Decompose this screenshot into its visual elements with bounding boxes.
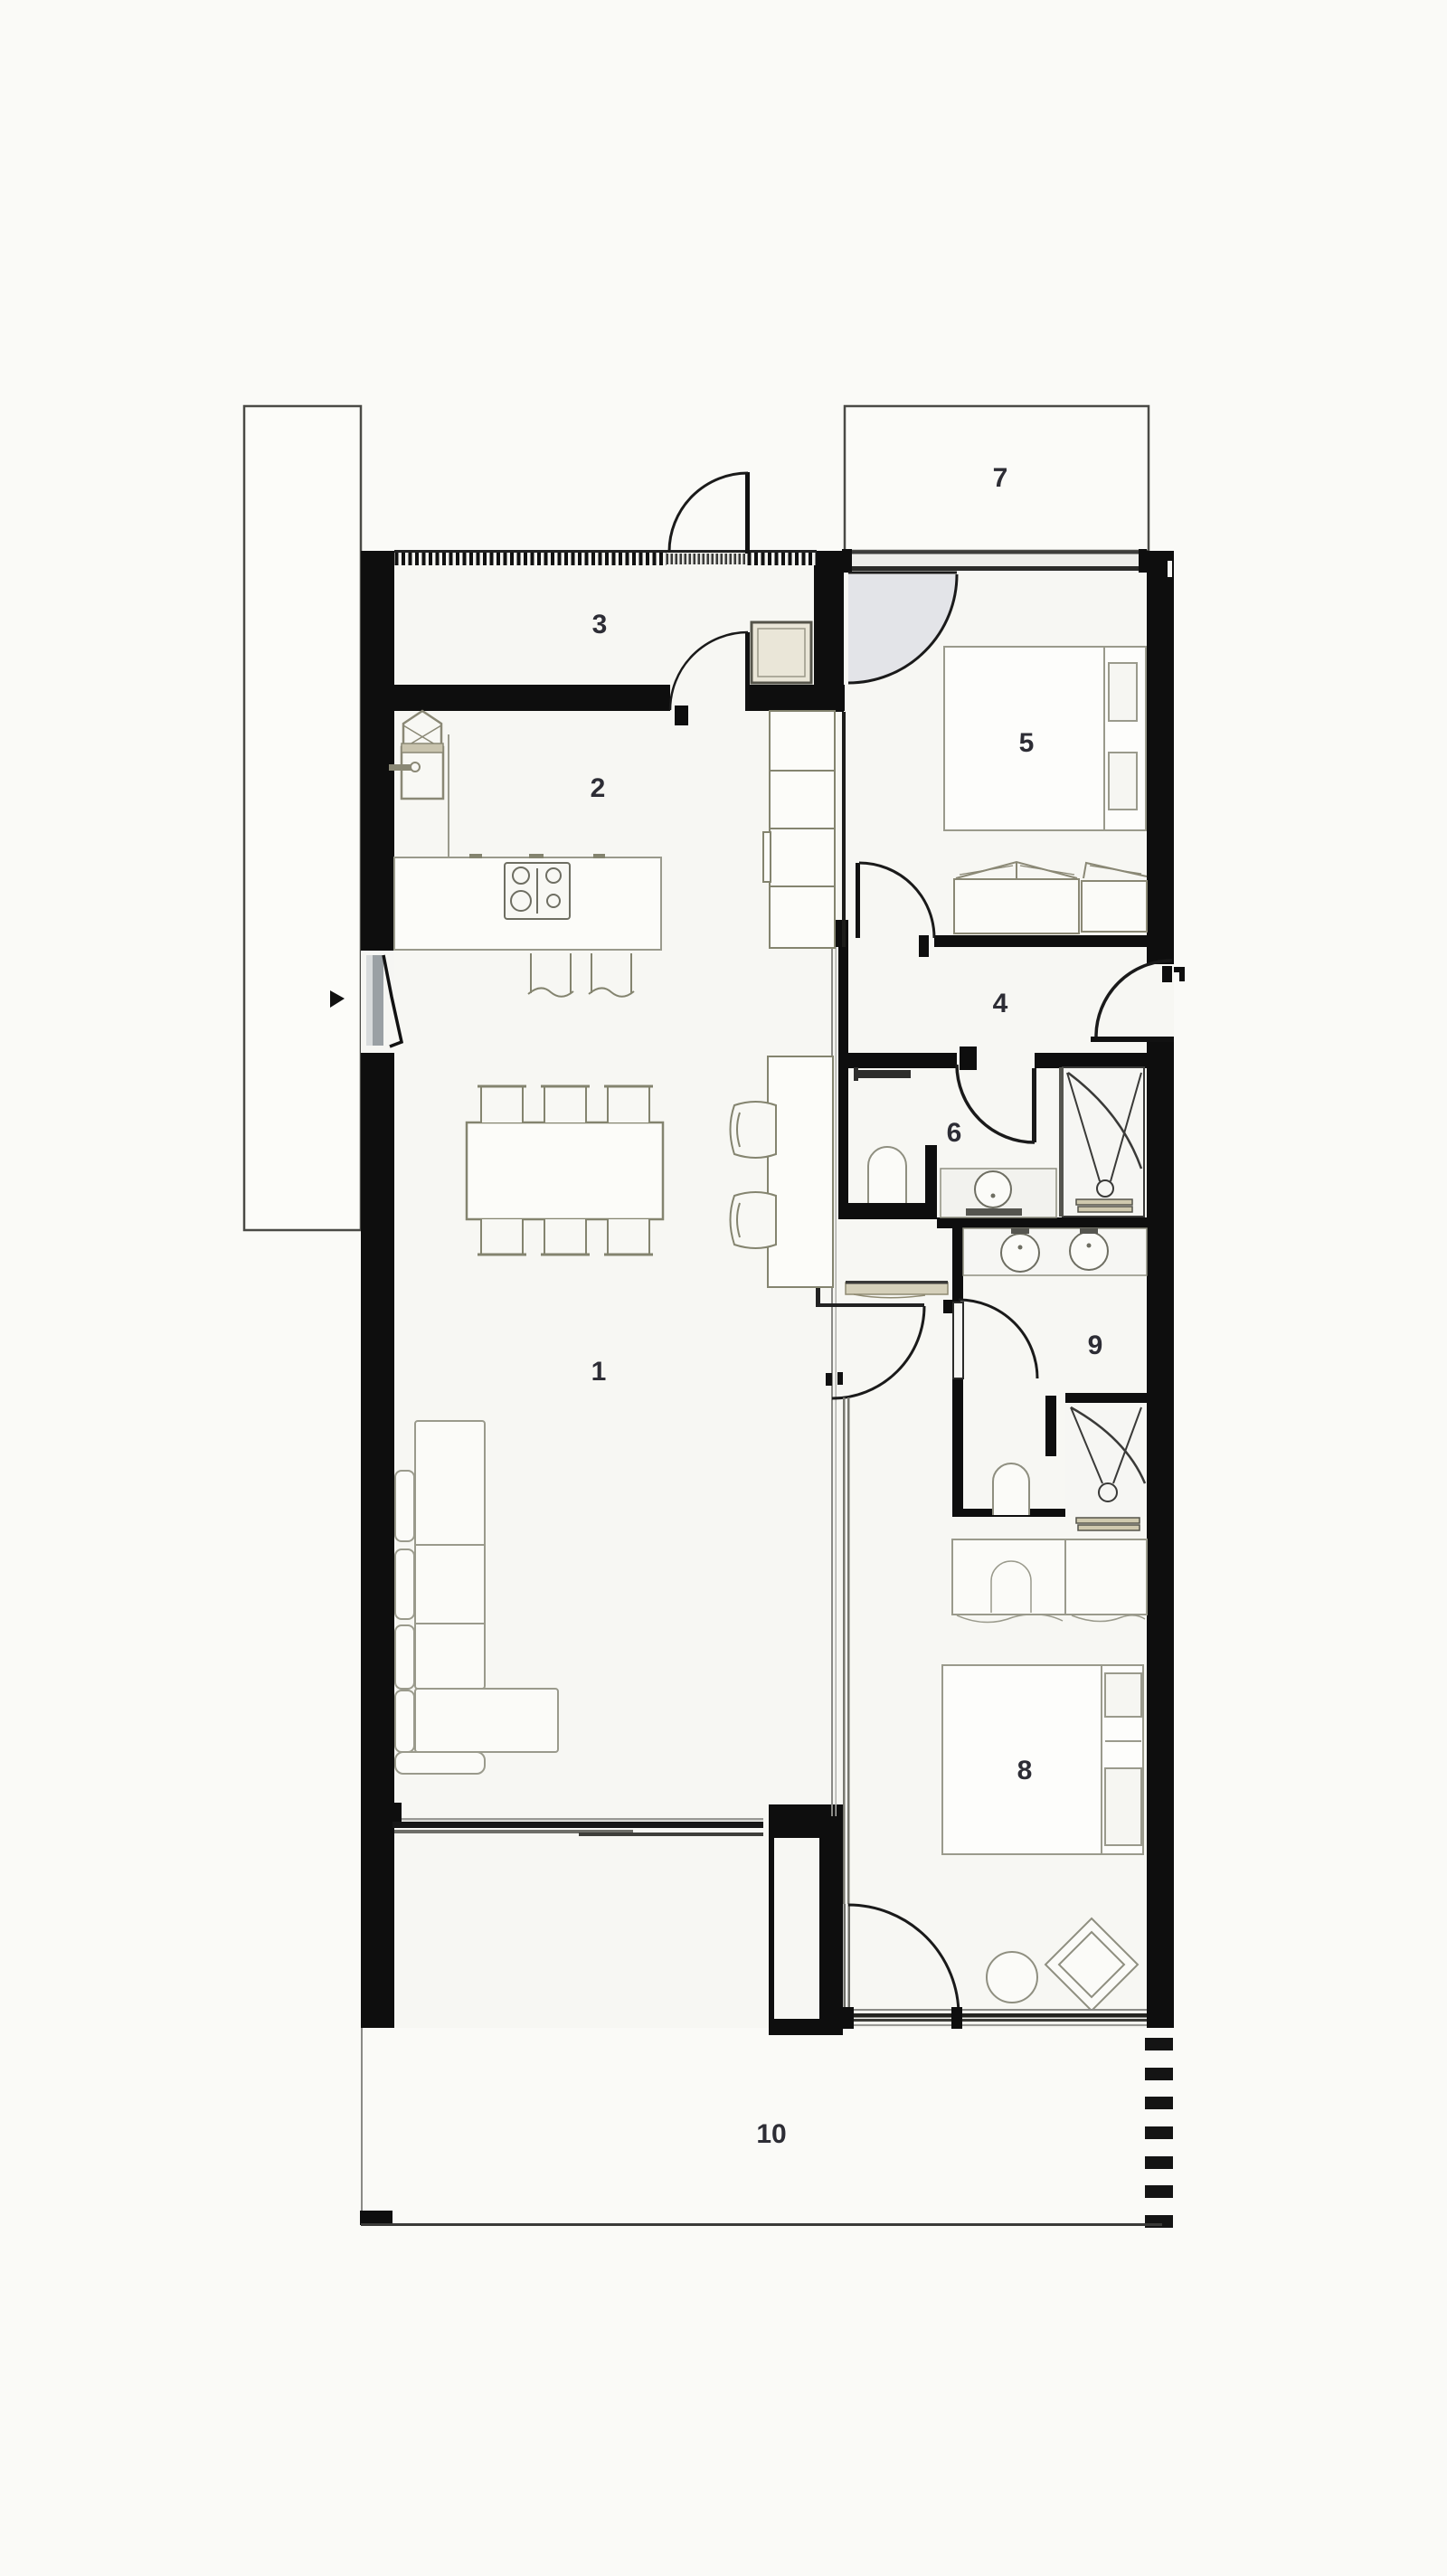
svg-text:4: 4 bbox=[993, 989, 1008, 1018]
svg-text:2: 2 bbox=[591, 773, 606, 803]
svg-text:7: 7 bbox=[993, 463, 1008, 493]
svg-text:5: 5 bbox=[1019, 728, 1035, 758]
svg-text:8: 8 bbox=[1017, 1756, 1033, 1785]
svg-text:9: 9 bbox=[1088, 1331, 1103, 1360]
svg-text:6: 6 bbox=[947, 1118, 962, 1148]
svg-text:10: 10 bbox=[756, 2119, 786, 2149]
svg-text:1: 1 bbox=[591, 1357, 607, 1387]
svg-text:3: 3 bbox=[592, 610, 608, 639]
